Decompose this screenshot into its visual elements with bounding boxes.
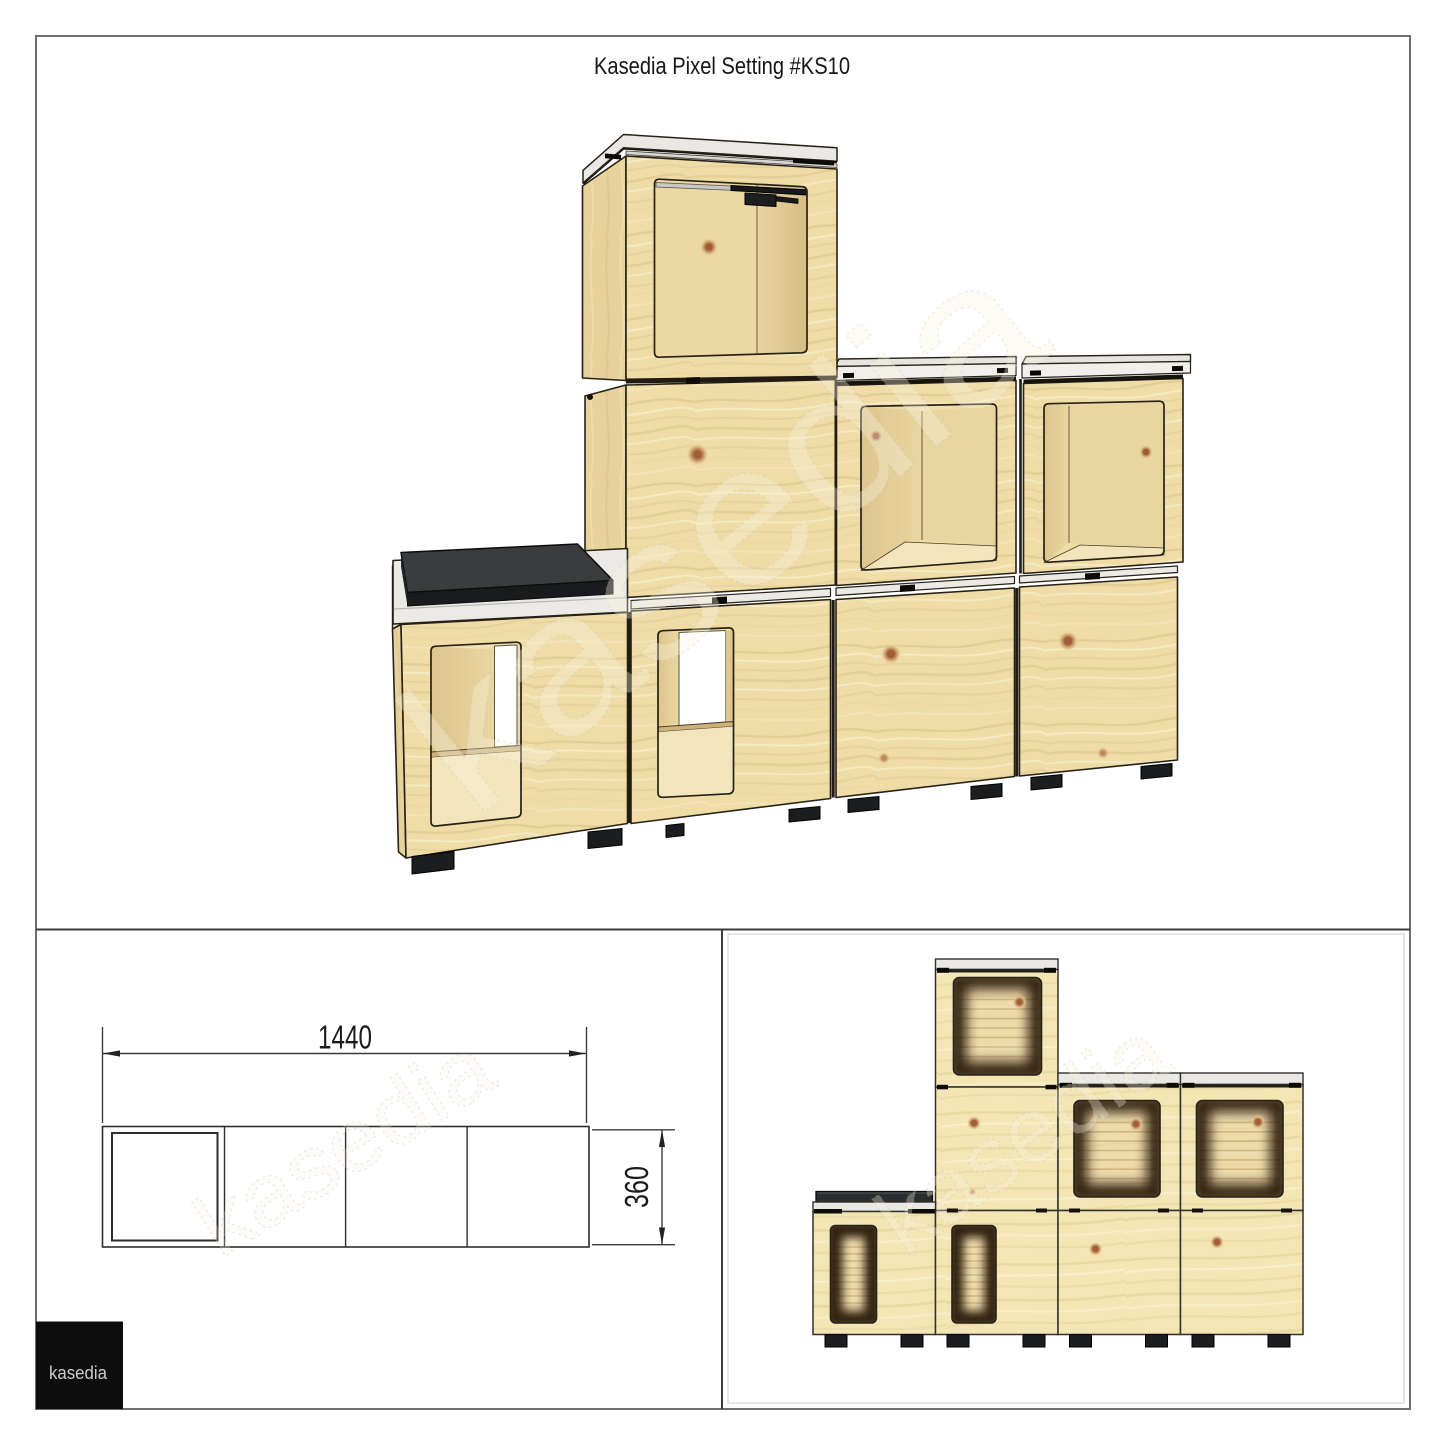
svg-text:360: 360 [618, 1166, 655, 1208]
svg-text:Kasedia Pixel Setting #KS10: Kasedia Pixel Setting #KS10 [594, 53, 850, 80]
svg-text:1440: 1440 [318, 1019, 372, 1056]
svg-text:kasedia: kasedia [49, 1363, 108, 1383]
